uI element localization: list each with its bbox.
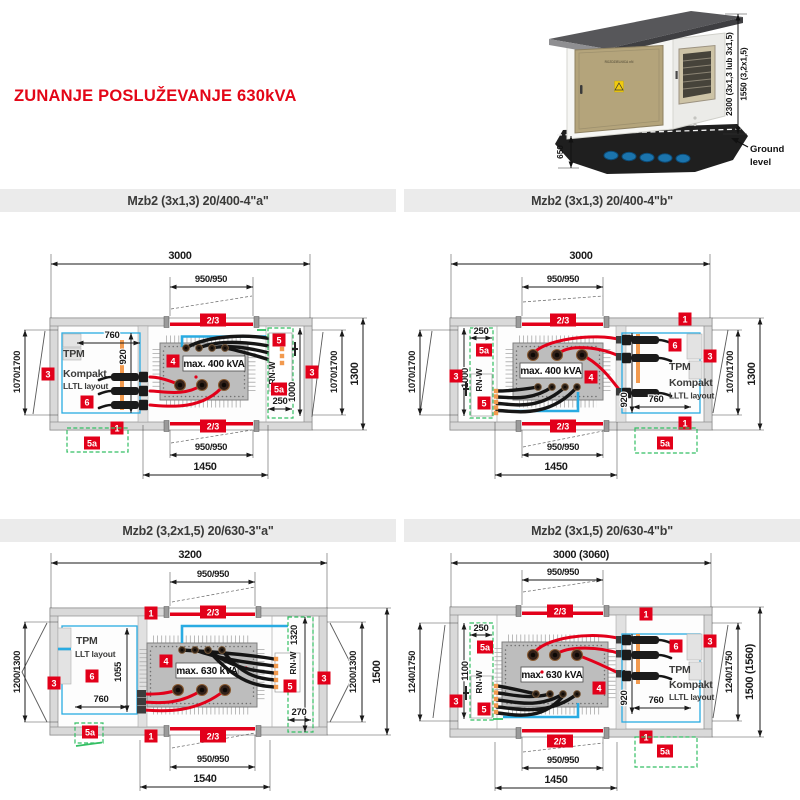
- dimension-label: 1500: [371, 660, 383, 683]
- ref-badge: 1: [148, 608, 153, 618]
- dimension-label: 950/950: [195, 442, 227, 453]
- tpm-label: LLT layout: [75, 649, 116, 659]
- ref-badge: 5a: [274, 384, 285, 394]
- dimension-label: 250: [273, 396, 288, 407]
- ref-badge: 2/3: [554, 606, 567, 616]
- dimension-label: 950/950: [547, 442, 579, 453]
- transformer-rating: max. 630 kVA: [521, 670, 582, 681]
- panel-screw: [693, 123, 696, 126]
- ref-badge: 3: [707, 351, 712, 361]
- dimension-label: 1200/1300: [348, 651, 359, 693]
- dimension-label: 760: [94, 694, 109, 705]
- dimension-label: 1070/1700: [12, 351, 23, 393]
- diagram-header-1: Mzb2 (3x1,3) 20/400-4"a": [0, 189, 396, 212]
- dimension-label: 250: [474, 326, 489, 337]
- dimension-label: 920: [118, 350, 129, 365]
- ref-badge: 3: [453, 371, 458, 381]
- tpm-label: TPM: [669, 361, 691, 373]
- dimension-label: 270: [292, 707, 307, 718]
- ref-badge: 2/3: [557, 315, 570, 325]
- ground-level-callout: Ground level: [731, 138, 784, 168]
- ref-badge: 3: [45, 369, 50, 379]
- floor-plan-20-630-a: TPMLLT layout1055760max. 630 kVA1320RN-W…: [0, 510, 400, 800]
- ref-badge: 1: [643, 609, 648, 619]
- dimension-label: 3000: [168, 250, 191, 262]
- ground-level-label: Ground: [750, 144, 784, 155]
- tpm-label: TPM: [76, 635, 98, 647]
- door-label: ROZDZIELNICA nN: [605, 60, 634, 64]
- dimension-label: 250: [474, 623, 489, 634]
- page: ZUNANJE POSLUŽEVANJE 630kVA ROZDZIELNICA…: [0, 0, 800, 800]
- ref-badge: 1: [682, 418, 687, 428]
- dimension-label: 920: [619, 691, 630, 706]
- dimension-label: 3200: [178, 549, 201, 561]
- height-dimension: 2300 (3x1,3 lub 3x1,5) 1550 (3,2x1,5): [723, 14, 749, 134]
- dimension-label: 1070/1700: [407, 351, 418, 393]
- dimension-label: 1100: [460, 661, 471, 680]
- dimension-label: 1070/1700: [725, 351, 736, 393]
- dimension-label: 1240/1750: [407, 651, 418, 693]
- dimension-label: 1240/1750: [724, 651, 735, 693]
- ref-badge: 6: [84, 397, 89, 407]
- dimension-label: 1300: [349, 362, 361, 385]
- tpm-label: Kompakt: [669, 377, 713, 389]
- dimension-label: 1450: [193, 461, 216, 473]
- ref-badge: 5: [287, 681, 292, 691]
- ref-badge: 2/3: [207, 421, 220, 431]
- transformer-rating: max. 400 kVA: [520, 366, 581, 377]
- ref-badge: 5: [276, 335, 281, 345]
- dimension-label: 1500 (1560): [744, 643, 756, 700]
- ground-level-label: level: [750, 157, 771, 168]
- door-handle: [580, 85, 583, 94]
- tpm-label: TPM: [63, 348, 85, 360]
- ref-badge: 3: [453, 696, 458, 706]
- ref-badge: 4: [588, 372, 593, 382]
- ref-badge: 5a: [87, 438, 98, 448]
- rnw-label: RN-W: [474, 669, 484, 693]
- ref-badge: 1: [148, 731, 153, 741]
- ref-badge: 4: [596, 683, 601, 693]
- tpm-label: LLTL layout: [63, 381, 109, 391]
- ref-badge: 2/3: [554, 736, 567, 746]
- dimension-label: 950/950: [547, 755, 579, 766]
- dimension-label: 1070/1700: [329, 351, 340, 393]
- ref-badge: 5: [481, 398, 486, 408]
- ref-badge: 5a: [479, 345, 490, 355]
- tpm-label: LLTL layout: [669, 692, 715, 702]
- ref-badge: 6: [672, 340, 677, 350]
- dimension-label: 760: [649, 394, 664, 405]
- dimension-label: 1320: [289, 625, 300, 645]
- dimension-label: 950/950: [195, 274, 227, 285]
- dimension-label: 3000: [569, 250, 592, 262]
- tpm-label: Kompakt: [669, 679, 713, 691]
- dimension-label: 950/950: [547, 567, 579, 578]
- dimension-label: 1200/1300: [12, 651, 23, 693]
- dimension-label: 950/950: [547, 274, 579, 285]
- transformer-rating: max. 400 kVA: [183, 359, 244, 370]
- panel-screw: [693, 116, 696, 119]
- ref-badge: 6: [673, 641, 678, 651]
- dimension-label: 1450: [544, 461, 567, 473]
- tpm-label: TPM: [669, 664, 691, 676]
- page-title: ZUNANJE POSLUŽEVANJE 630kVA: [14, 87, 297, 106]
- ref-badge: 2/3: [207, 731, 220, 741]
- ref-badge: 5: [481, 704, 486, 714]
- ref-badge: 3: [707, 636, 712, 646]
- dimension-label: 1000: [287, 382, 298, 402]
- dimension-label: 920: [619, 393, 630, 408]
- tpm-label: LLTL layout: [669, 391, 715, 401]
- ref-badge: 1: [682, 314, 687, 324]
- ref-badge: 3: [321, 673, 326, 683]
- rnw-label: RN-W: [267, 360, 277, 384]
- dimension-label: 950/950: [197, 754, 229, 765]
- ref-badge: 5a: [660, 746, 671, 756]
- ref-badge: 2/3: [557, 421, 570, 431]
- rnw-label: RN-W: [474, 367, 484, 391]
- ref-badge: 3: [309, 367, 314, 377]
- ref-badge: 2/3: [207, 607, 220, 617]
- diagram-header-2: Mzb2 (3x1,3) 20/400-4"b": [404, 189, 800, 212]
- ref-badge: 4: [163, 656, 168, 666]
- ref-badge: 5a: [480, 642, 491, 652]
- ref-badge: 6: [89, 671, 94, 681]
- ref-badge: 5a: [660, 438, 671, 448]
- dimension-label: 760: [649, 695, 664, 706]
- floor-plan-20-400-b: 2505aRN-W1000max. 400 kVATPMKompaktLLTL …: [400, 230, 800, 510]
- ref-badge: 4: [170, 356, 175, 366]
- ref-badge: 5a: [85, 727, 96, 737]
- dimension-label: 1055: [113, 661, 124, 682]
- dimension-label: 2300 (3x1,3 lub 3x1,5): [725, 32, 734, 116]
- ref-badge: 2/3: [207, 315, 220, 325]
- vent-handle: [676, 71, 678, 79]
- dimension-label: 1300: [746, 362, 758, 385]
- station-photo: ROZDZIELNICA nN 2300 (3x1,3 lub 3x1,5) 1…: [545, 2, 800, 178]
- diagram-title: Mzb2 (3x1,3) 20/400-4"b": [531, 194, 673, 208]
- dimension-label: 950/950: [197, 569, 229, 580]
- dimension-label: 1540: [193, 773, 216, 785]
- dimension-label: 3000 (3060): [553, 549, 610, 561]
- ref-badge: 3: [51, 678, 56, 688]
- floor-plan-20-630-b: 2505a1100RN-W5max. 630 kVATPMKompaktLLTL…: [400, 510, 800, 800]
- dimension-label: 650: [556, 145, 565, 159]
- dimension-label: 1450: [544, 774, 567, 786]
- floor-plan-20-400-a: TPMKompaktLLTL layout760920max. 400 kVAR…: [0, 230, 400, 510]
- dimension-label: 760: [105, 330, 120, 341]
- rnw-label: RN-W: [288, 650, 298, 674]
- dimension-label: 1550 (3,2x1,5): [740, 47, 749, 101]
- diagram-title: Mzb2 (3x1,3) 20/400-4"a": [127, 194, 268, 208]
